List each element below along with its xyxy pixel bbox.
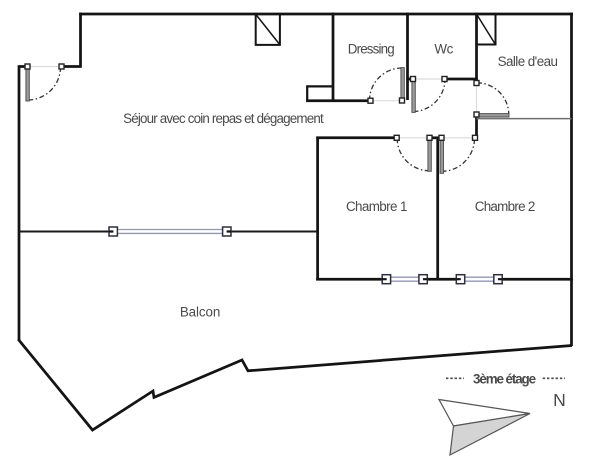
svg-text:N: N: [553, 390, 566, 410]
svg-text:Salle d'eau: Salle d'eau: [498, 54, 558, 69]
svg-text:Balcon: Balcon: [180, 305, 220, 320]
svg-text:3ème étage: 3ème étage: [473, 372, 536, 387]
svg-text:Wc: Wc: [434, 42, 453, 57]
svg-text:Séjour avec coin repas et déga: Séjour avec coin repas et dégagement: [123, 111, 324, 126]
svg-text:Chambre 2: Chambre 2: [475, 199, 535, 214]
svg-text:Dressing: Dressing: [348, 42, 394, 57]
svg-text:Chambre 1: Chambre 1: [346, 199, 407, 214]
